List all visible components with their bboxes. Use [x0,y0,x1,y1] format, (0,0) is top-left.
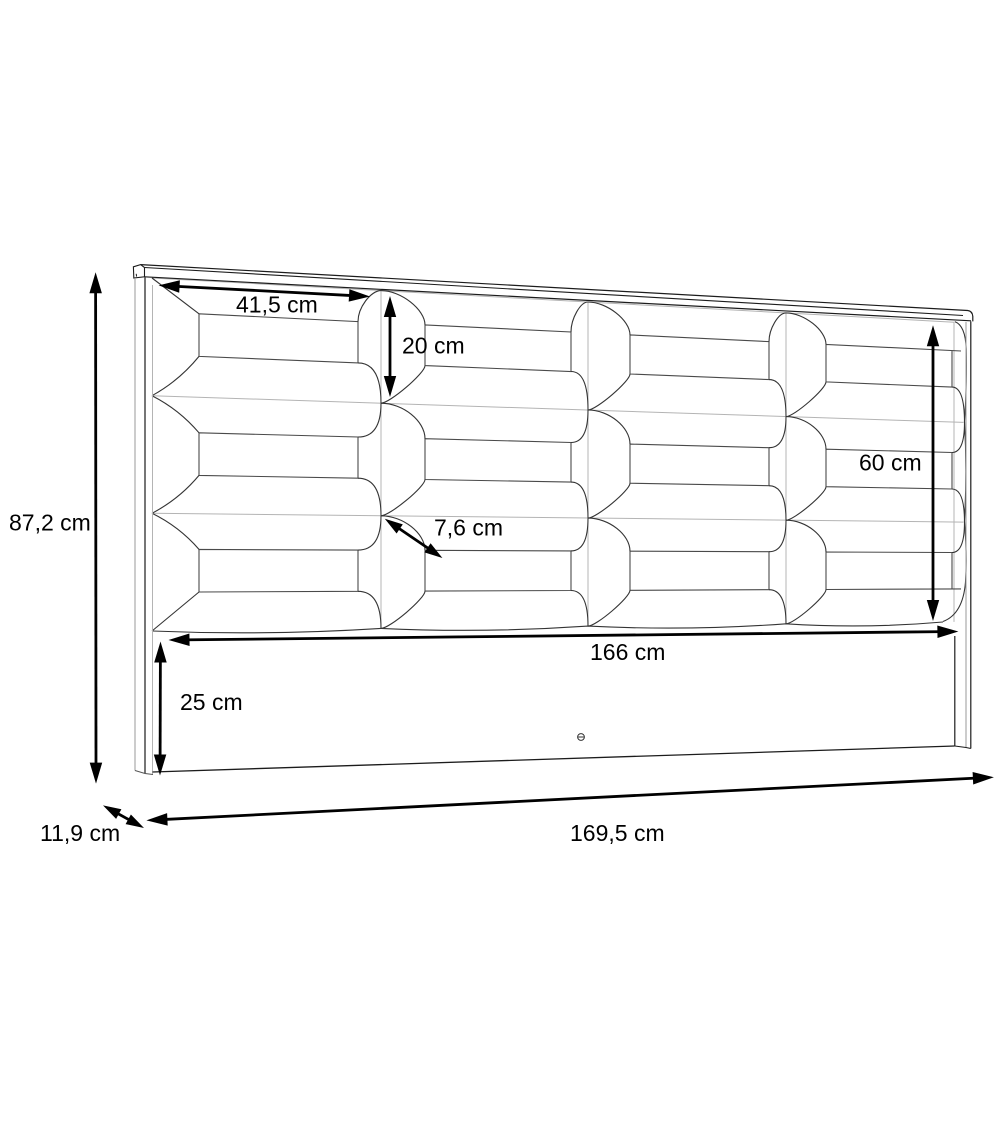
svg-text:87,2 cm: 87,2 cm [9,510,91,536]
svg-text:166 cm: 166 cm [590,639,665,665]
svg-text:7,6 cm: 7,6 cm [434,515,503,541]
svg-text:25 cm: 25 cm [180,689,243,715]
svg-text:20 cm: 20 cm [402,333,465,359]
svg-text:60 cm: 60 cm [859,450,922,476]
svg-text:41,5 cm: 41,5 cm [236,292,318,318]
svg-text:169,5 cm: 169,5 cm [570,820,665,846]
svg-text:11,9 cm: 11,9 cm [40,820,120,846]
